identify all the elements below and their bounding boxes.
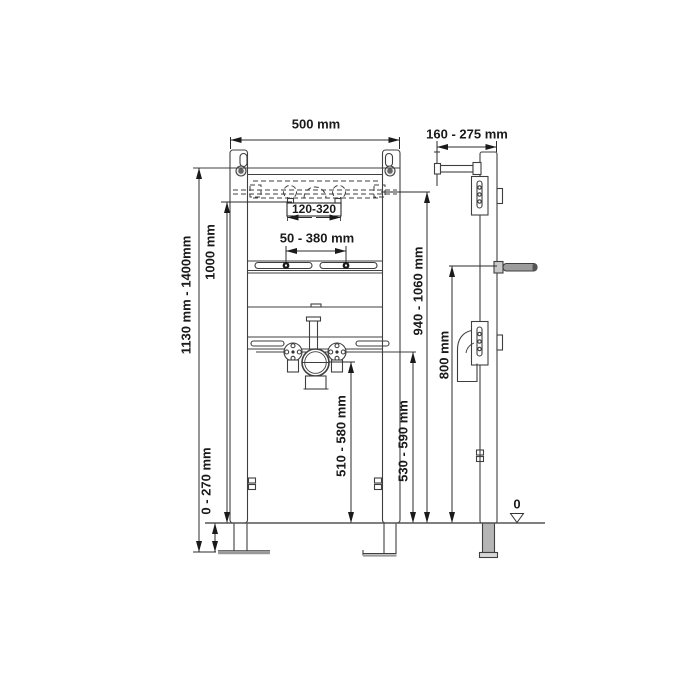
lower-fixing-rail [248,337,390,349]
label-leg-extension: 0 - 270 mm [200,447,213,514]
label-rod-height: 800 mm [438,331,451,379]
basin-fixing-rail [248,261,383,271]
pipe-clamp-right-icon [375,478,382,490]
dim-frame-width [231,137,400,149]
upper-bracket-plate [472,177,503,216]
label-datum-zero: 0 [513,498,520,511]
right-leg-foot [363,523,397,556]
tap-hole-left [284,186,297,199]
drain-standpipe [307,317,321,349]
washbasin-dashed-outline [233,181,397,199]
water-connection-right [328,343,346,372]
drain-outlet [302,349,329,389]
dim-wall-distance [437,141,497,152]
left-leg-foot [218,523,270,553]
label-basin-fixing-spacing: 50 - 380 mm [280,232,354,245]
basin-fixing-dimension [286,246,346,262]
label-drain-height: 510 - 580 mm [335,395,348,477]
label-tap-spacing: 120-320 [292,203,336,215]
pipe-clamp-left-icon [249,478,256,490]
mounting-rod [494,262,537,274]
left-rail [230,150,248,523]
label-frame-width: 500 mm [292,118,340,131]
technical-drawing-canvas: 500 mm 160 - 275 mm 1130 mm - 1400mm 100… [0,0,700,700]
basin-bump [304,187,326,198]
label-water-supply-height: 530 - 590 mm [397,400,410,482]
side-leg-foot [480,523,498,558]
label-basin-rim-height: 940 - 1060 mm [412,247,425,336]
installation-frame-linework [0,0,700,700]
label-upper-reference: 1000 mm [204,224,217,280]
datum-triangle-icon [511,514,524,523]
water-connection-left [284,343,302,372]
label-frame-height: 1130 mm - 1400mm [180,236,193,355]
label-wall-distance: 160 - 275 mm [426,128,508,141]
tap-hole-right [333,186,346,199]
